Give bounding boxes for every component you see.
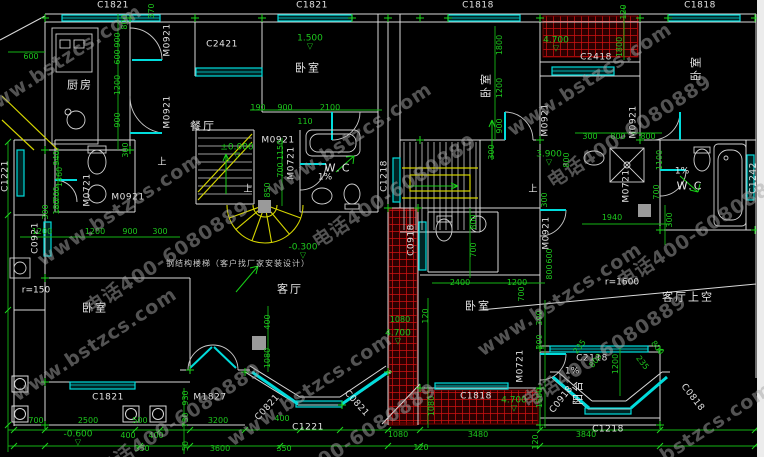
dimension-label: 2100 xyxy=(320,104,340,112)
opening-code-label: C1221 xyxy=(292,424,324,433)
opening-code-label: C1821 xyxy=(296,2,328,11)
dimension-label: 800 xyxy=(470,214,478,229)
dimension-label: 350 xyxy=(276,445,291,453)
opening-code-label: M0921 xyxy=(164,23,173,56)
level-mark-label: ±0.000 xyxy=(220,144,253,159)
dimension-label: 800 xyxy=(546,264,554,279)
dimension-label: 300 xyxy=(122,142,130,157)
dimension-label: 120 xyxy=(422,308,430,323)
dimension-label: 3840 xyxy=(576,431,596,439)
dimension-label: 1800 xyxy=(496,35,504,55)
dimension-label: 3600 xyxy=(210,445,230,453)
dimension-label: 500 xyxy=(132,417,147,425)
opening-code-label: M0921 xyxy=(164,95,173,128)
opening-code-label: C1818 xyxy=(460,393,492,402)
dimension-label: 2500 xyxy=(78,417,98,425)
opening-code-label: C1818 xyxy=(684,2,716,11)
level-mark-label: 3.900 xyxy=(536,151,562,166)
dimension-label: 120 xyxy=(413,444,428,452)
room-label: 客厅 xyxy=(277,284,303,295)
dimension-label: 700 xyxy=(518,286,526,301)
plan-linework xyxy=(0,0,764,457)
dimension-label: 1100 xyxy=(656,150,664,170)
room-label: 卧室 xyxy=(481,72,492,98)
dimension-label: 400 xyxy=(264,314,272,329)
dimension-label: 1460 xyxy=(56,167,64,187)
dimension-label: 940 xyxy=(53,150,61,165)
opening-code-label: C1218 xyxy=(592,426,624,435)
opening-code-label: C1818 xyxy=(462,2,494,11)
dimension-label: 900 xyxy=(496,118,504,133)
dimension-label: 1200 xyxy=(32,228,52,236)
dimension-label: 1150 xyxy=(277,140,285,160)
dimension-label: 1080 xyxy=(388,431,408,439)
room-label: 厨房 xyxy=(67,80,93,91)
dimension-label: 600 xyxy=(23,53,38,61)
level-mark-label: -0.600 xyxy=(63,431,92,446)
dimension-label: 700 xyxy=(28,417,43,425)
level-mark-label: 4.700 xyxy=(543,37,569,52)
dimension-label: 600 xyxy=(546,248,554,263)
dimension-label: 300 xyxy=(666,212,674,227)
opening-code-label: M0721 xyxy=(517,349,526,382)
annotation-label: 上 xyxy=(243,186,252,195)
dimension-label: 300 xyxy=(541,192,549,207)
dimension-label: 120 xyxy=(532,434,540,449)
dimension-label: 900 xyxy=(277,104,292,112)
dimension-label: 900 xyxy=(122,228,137,236)
room-label: W.C xyxy=(677,181,704,192)
dimension-label: 110 xyxy=(297,118,312,126)
dimension-label: 120 xyxy=(620,4,628,19)
room-label: 餐厅 xyxy=(190,121,216,132)
dimension-label: 3480 xyxy=(468,431,488,439)
dimension-label: 2400 xyxy=(450,279,470,287)
floor-plan-canvas: 厨房卧室餐厅卧室客厅卧室卧室卧室客厅上空阳台W.CW.C±0.0001.500-… xyxy=(0,0,764,457)
dimension-label: 700 xyxy=(653,184,661,199)
dimension-label: 600 xyxy=(114,49,122,64)
level-mark-label: -0.300 xyxy=(288,244,317,259)
opening-code-label: C1821 xyxy=(92,394,124,403)
opening-code-label: C0918 xyxy=(408,224,417,256)
dimension-label: 1200 xyxy=(496,78,504,98)
annotation-label: 1% xyxy=(675,168,689,177)
dimension-label: 370 xyxy=(148,3,156,18)
dimension-label: 200 xyxy=(536,334,544,349)
dimension-label: 3200 xyxy=(208,417,228,425)
dimension-label: 1080 xyxy=(264,348,272,368)
annotation-label: 上 xyxy=(528,186,537,195)
level-mark-label: 1.500 xyxy=(297,35,323,50)
opening-code-label: M0721 xyxy=(623,169,632,202)
dimension-label: 300 xyxy=(488,144,496,159)
dimension-label: 180 xyxy=(53,199,61,214)
room-label: 卧室 xyxy=(465,301,491,312)
dimension-label: 1940 xyxy=(602,214,622,222)
annotation-label: 1% xyxy=(318,174,332,183)
opening-code-label: C2421 xyxy=(206,41,238,50)
dimension-label: 50 xyxy=(182,441,190,451)
opening-code-label: M0721 xyxy=(84,173,93,206)
dimension-label: 1200 xyxy=(114,75,122,95)
dimension-label: 190 xyxy=(250,104,265,112)
dimension-label: 1080 xyxy=(390,316,410,324)
dimension-label: 700 xyxy=(470,242,478,257)
opening-code-label: M0921 xyxy=(543,216,552,249)
dimension-label: 300 xyxy=(42,204,50,219)
annotation-label: r=150 xyxy=(22,287,50,296)
dimension-label: 300 xyxy=(152,228,167,236)
dimension-label: 900 xyxy=(114,112,122,127)
opening-code-label: C1221 xyxy=(2,160,11,192)
room-label: 卧室 xyxy=(295,63,321,74)
stair-note-label: 钢结构楼梯（客户找厂家安装设计） xyxy=(166,260,310,268)
